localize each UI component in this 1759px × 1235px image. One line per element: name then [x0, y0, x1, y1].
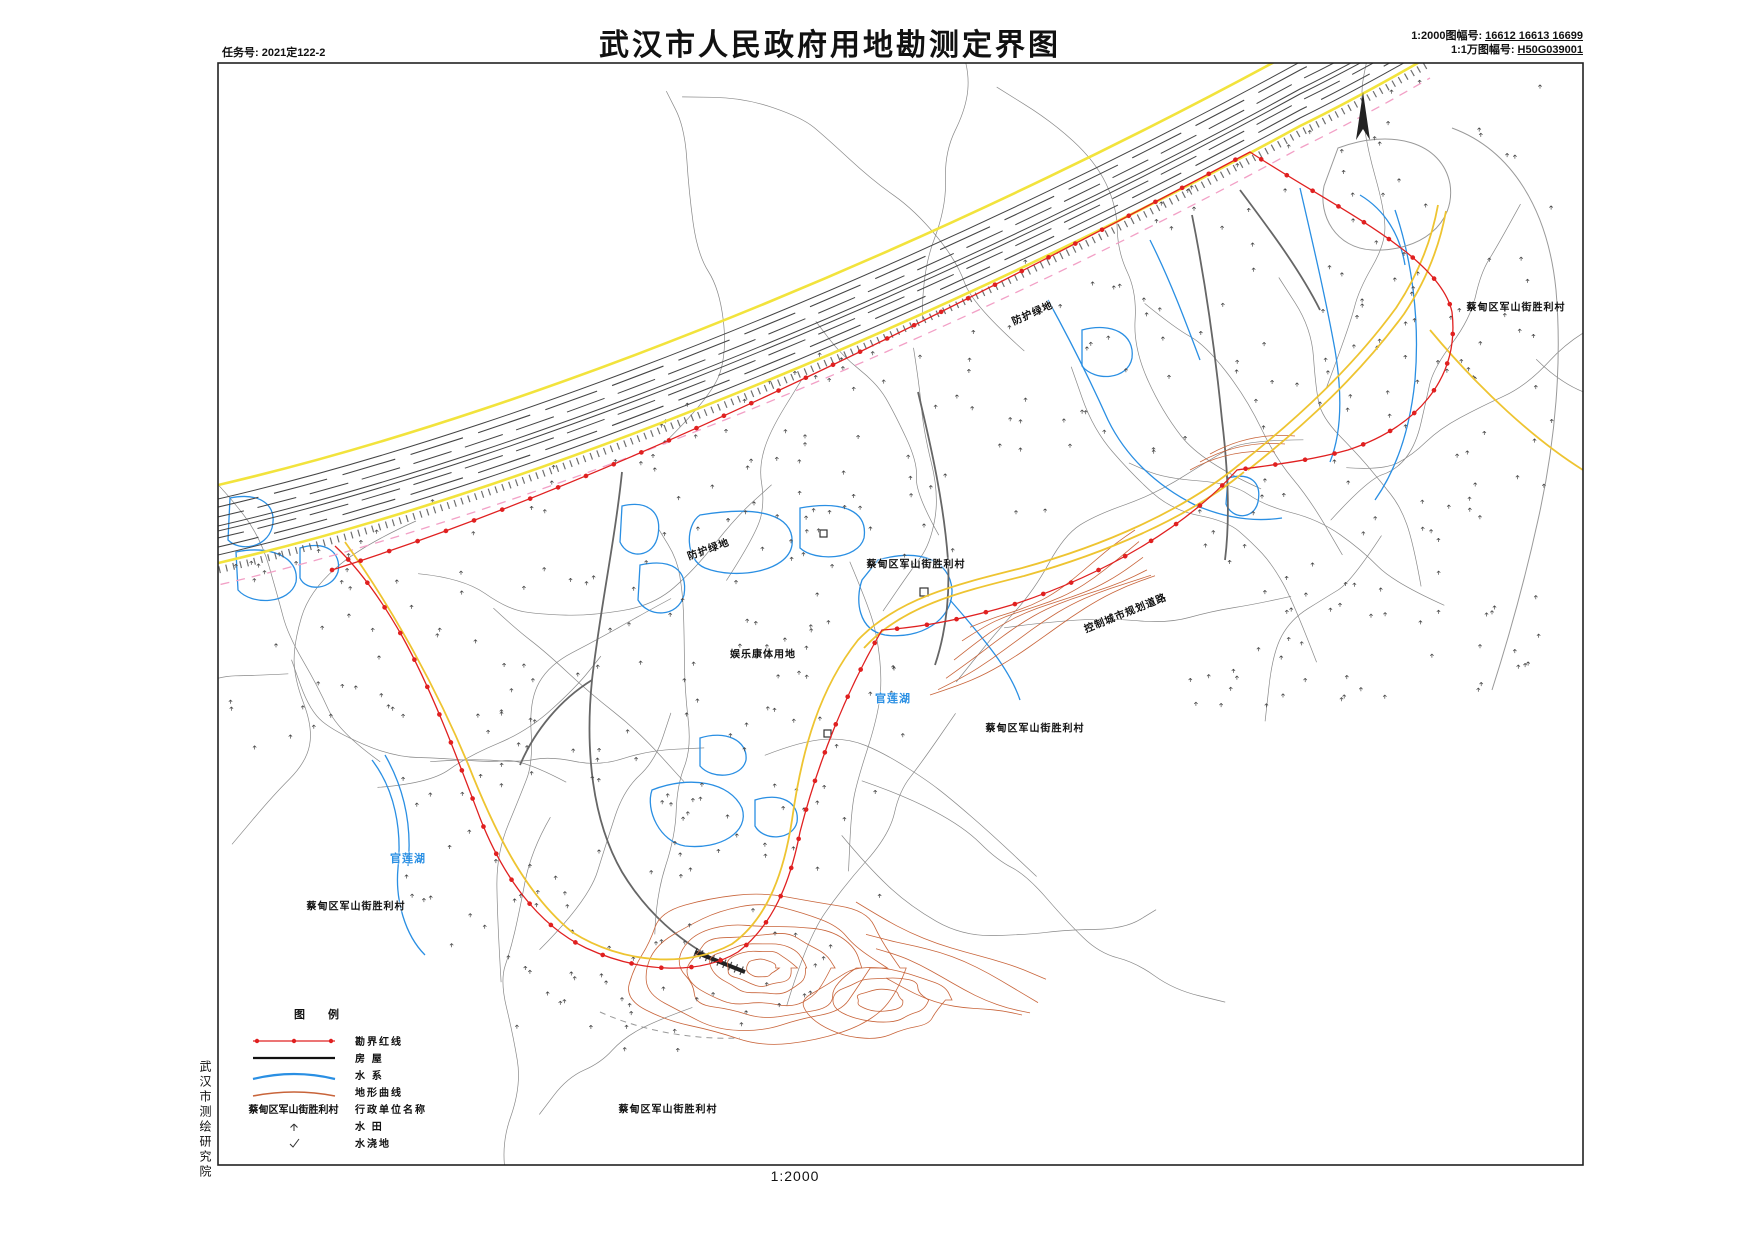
survey-boundary-red-line — [332, 152, 1453, 968]
map-frame — [218, 63, 1583, 1165]
legend-title: 图 例 — [294, 1006, 476, 1022]
legend-label: 水 田 — [355, 1118, 384, 1133]
north-arrow-icon — [1356, 92, 1370, 140]
paddy-field-icon — [246, 1119, 341, 1133]
legend: 图 例 勘界红线 房 屋 水 系 地形曲线 — [246, 1006, 476, 1151]
legend-row-paddy: 水 田 — [246, 1117, 476, 1134]
survey-map-sheet: 任务号: 2021定122-2 武汉市人民政府用地勘测定界图 1:2000图幅号… — [0, 0, 1759, 1235]
tree-symbols — [229, 80, 1554, 1052]
legend-row-water: 水 系 — [246, 1066, 476, 1083]
blue-curve-icon — [246, 1067, 341, 1083]
legend-row-irrigated: 水浇地 — [246, 1134, 476, 1151]
red-boundary-line-icon — [246, 1034, 341, 1048]
irrigated-land-icon — [246, 1136, 341, 1150]
legend-label: 行政单位名称 — [355, 1101, 427, 1116]
expressway — [205, 0, 1430, 588]
legend-label: 房 屋 — [355, 1050, 384, 1065]
legend-row-boundary: 勘界红线 — [246, 1032, 476, 1049]
legend-row-contour: 地形曲线 — [246, 1083, 476, 1100]
minor-roads — [520, 128, 1558, 1038]
legend-label: 水 系 — [355, 1067, 384, 1082]
water-features — [228, 188, 1416, 955]
legend-label: 地形曲线 — [355, 1084, 403, 1099]
planning-roads — [345, 205, 1583, 959]
legend-label: 水浇地 — [355, 1135, 391, 1150]
admin-name-sample: 蔡甸区军山街胜利村 — [246, 1101, 341, 1116]
legend-label: 勘界红线 — [355, 1033, 403, 1048]
orange-curve-icon — [246, 1084, 341, 1100]
legend-row-building: 房 屋 — [246, 1049, 476, 1066]
black-line-icon — [246, 1051, 341, 1065]
legend-row-admin-name: 蔡甸区军山街胜利村 行政单位名称 — [246, 1100, 476, 1117]
